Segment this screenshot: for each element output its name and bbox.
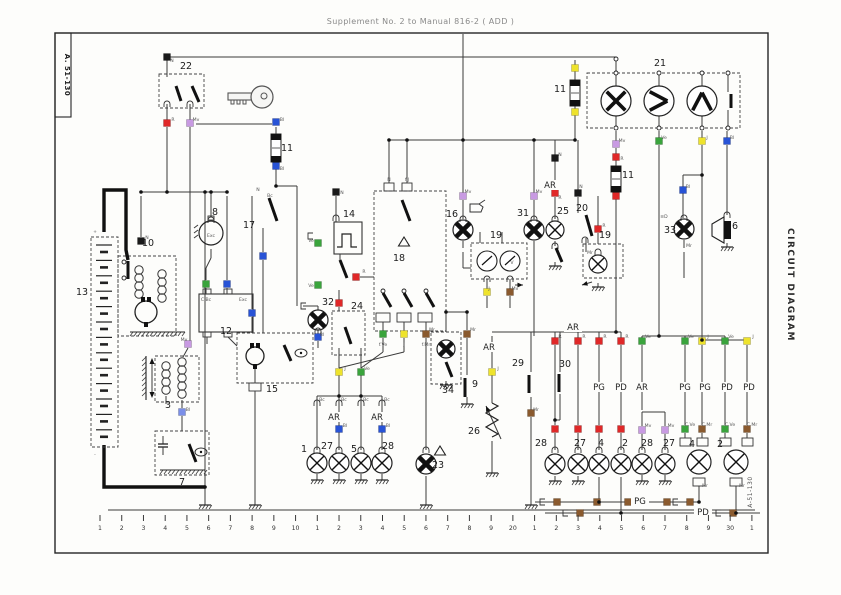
junction-dot <box>405 138 409 142</box>
terminal-number: 6 <box>207 525 211 532</box>
component-number: 27 <box>321 441 333 452</box>
component-number: 26 <box>468 426 480 437</box>
coil-loop <box>178 374 186 382</box>
connector-R <box>618 338 625 345</box>
vibrator-hatch <box>142 392 146 396</box>
dynamo <box>199 221 223 245</box>
ground-hatch <box>146 332 149 336</box>
component-number: 25 <box>557 206 569 217</box>
junction-dot <box>444 310 448 314</box>
wire-color-code: Bc <box>341 397 347 403</box>
motor-brush <box>250 343 254 348</box>
ground-hatch <box>164 470 167 474</box>
connector-Mr <box>577 510 584 517</box>
wire-color-code: R <box>620 156 624 162</box>
terminal-tab <box>203 289 211 294</box>
key-icon <box>237 100 240 104</box>
switch-blade <box>586 215 592 236</box>
junction-dot <box>614 330 618 334</box>
component-dashed-box <box>237 333 313 383</box>
component-number: 4 <box>689 439 695 450</box>
component-dashed-box <box>155 356 199 402</box>
component-number: 32 <box>322 297 334 308</box>
switch-blade <box>345 327 351 344</box>
ground-hatch <box>174 332 177 336</box>
wire-color-code: R <box>582 334 586 340</box>
wire-color-code: Mv <box>512 286 519 292</box>
ground-hatch <box>188 470 191 474</box>
junction-dot <box>734 511 738 515</box>
connector-Mr <box>664 499 671 506</box>
junction-dot <box>619 511 623 515</box>
wire-color-code: J <box>496 366 498 372</box>
connector-J <box>572 109 579 116</box>
wire-color-code: C.Bc <box>201 297 212 303</box>
coil-loop <box>158 278 166 286</box>
connector-J <box>401 331 408 338</box>
wire-color-code: Bl <box>686 184 690 190</box>
fuse-cap <box>611 166 621 172</box>
connector-Bl <box>249 310 256 317</box>
terminal-number: 7 <box>446 525 450 532</box>
terminal-number: 4 <box>381 525 385 532</box>
junction-dot <box>532 138 536 142</box>
connector-R <box>613 154 620 161</box>
terminal-circle <box>700 71 704 75</box>
motor-brush <box>141 297 145 302</box>
junction-dot <box>165 190 169 194</box>
terminal-tab <box>376 313 390 322</box>
connector-N <box>575 190 582 197</box>
terminal-tab <box>418 313 432 322</box>
connector-Ve <box>203 281 210 288</box>
wire-color-code: R <box>603 334 607 340</box>
motor-brush <box>147 297 151 302</box>
vibrator-arrow-head <box>150 358 155 364</box>
connector-J <box>699 138 706 145</box>
connector-Mr <box>554 499 561 506</box>
terminal-circle <box>726 126 730 130</box>
wire-color-code: Mr <box>470 327 476 333</box>
wire-color-code: J <box>706 334 708 340</box>
terminal-number: 4 <box>598 525 602 532</box>
dashlight-icon: ≡D <box>660 214 668 220</box>
fuse-cap <box>271 134 281 140</box>
oil-can-icon <box>479 200 485 204</box>
terminal-number: 20 <box>509 525 517 532</box>
wire-circuit-label: AR <box>544 181 556 191</box>
coil-loop <box>162 362 170 370</box>
connector-R <box>552 426 559 433</box>
terminal-number: 2 <box>120 525 124 532</box>
component-number: 3 <box>165 400 171 411</box>
wire-color-code: Bl <box>280 117 284 123</box>
junction-dot <box>700 338 704 342</box>
wire-color-code: Bc <box>363 397 369 403</box>
component-number: 29 <box>512 358 524 369</box>
ground-hatch <box>731 247 734 251</box>
terminal-number: 1 <box>98 525 102 532</box>
component-number: 1 <box>301 444 307 455</box>
wire-color-code: Mv <box>668 423 675 429</box>
dynamo-brush-hatch <box>194 235 198 238</box>
gauge <box>687 86 717 116</box>
ground-hatch <box>176 470 179 474</box>
cam-dot <box>200 451 202 453</box>
terminal-number: 9 <box>272 525 276 532</box>
terminal-number: 30 <box>726 525 734 532</box>
component-number: 28 <box>641 438 653 449</box>
terminal-number: 6 <box>641 525 645 532</box>
ground-hatch <box>158 332 161 336</box>
junction-dot <box>203 190 207 194</box>
ground-hatch <box>150 332 153 336</box>
wire-color-code: R <box>602 223 606 229</box>
wire-color-code: f.J <box>405 177 409 183</box>
terminal-circle <box>402 289 406 293</box>
oil-can-icon <box>470 204 483 212</box>
component-number: 14 <box>343 209 355 220</box>
connector-R <box>164 120 171 127</box>
wire-color-code: Ve <box>364 366 370 372</box>
connector-fork <box>582 237 588 243</box>
junction-dot <box>225 190 229 194</box>
terminal-number: 1 <box>750 525 754 532</box>
component-number: 19 <box>599 230 611 241</box>
component-number: 17 <box>243 220 255 231</box>
wire-circuit-label: PG <box>593 383 605 393</box>
terminal-number: 1 <box>315 525 319 532</box>
wire-color-code: Mv <box>181 337 188 343</box>
wire-color-code: Ve <box>308 283 314 289</box>
connector-J <box>572 65 579 72</box>
junction-dot <box>697 500 701 504</box>
coil-loop <box>158 294 166 302</box>
switch-blade <box>284 345 291 361</box>
wire-color-code: Bl <box>343 423 347 429</box>
terminal-circle <box>657 126 661 130</box>
component-number: 20 <box>576 203 588 214</box>
wire-color-code: Bc <box>319 397 325 403</box>
ground-hatch <box>166 332 169 336</box>
connector-J <box>744 338 751 345</box>
wire-circuit-label: AR <box>483 343 495 353</box>
terminal-number: 5 <box>185 525 189 532</box>
scanned-manual-page: Supplement No. 2 to Manual 816-2 ( ADD )… <box>0 0 841 595</box>
vibrator-hatch <box>142 382 146 386</box>
connector-Ve <box>315 282 322 289</box>
wire-color-code: N <box>340 190 343 196</box>
wire-circuit-label: PD <box>615 383 627 393</box>
connector-R <box>618 426 625 433</box>
wire-color-code: Mr <box>587 250 593 256</box>
wire-color-code: Ve <box>645 334 651 340</box>
coil-loop <box>135 282 143 290</box>
switch-blade <box>383 293 391 307</box>
junction-dot <box>139 190 143 194</box>
wire-color-code: Bc <box>267 193 273 199</box>
wire-circuit-label: AR <box>328 413 340 423</box>
fuse-cap <box>570 80 580 86</box>
vibrator-arrow-head <box>150 392 155 398</box>
component-number: 4 <box>598 438 604 449</box>
ground-hatch <box>184 470 187 474</box>
wire-color-code: R <box>558 334 562 340</box>
coil-loop <box>135 266 143 274</box>
component-number: 11 <box>554 84 566 95</box>
component-dashed-box <box>159 74 204 108</box>
junction-dot <box>387 138 391 142</box>
connector-BlL <box>179 409 186 416</box>
component-number: 11 <box>622 170 634 181</box>
terminal-circle <box>424 289 428 293</box>
wire-circuit-label: PG <box>634 497 646 507</box>
coil-loop <box>158 286 166 294</box>
component-number: 11 <box>281 143 293 154</box>
component-number: 13 <box>76 287 88 298</box>
terminal-tab <box>697 438 708 446</box>
junction-dot <box>553 418 557 422</box>
wire-color-code: J <box>487 286 489 292</box>
key-icon <box>251 86 273 108</box>
fuse-cap <box>611 186 621 192</box>
ground-hatch <box>728 247 731 251</box>
terminal-circle <box>700 126 704 130</box>
component-number: 18 <box>393 253 405 264</box>
terminal-number: 7 <box>663 525 667 532</box>
connector-N <box>333 189 340 196</box>
connector-Bl <box>336 426 343 433</box>
ground-hatch <box>130 332 133 336</box>
switch-blade <box>340 260 347 278</box>
ground-hatch <box>172 470 175 474</box>
component-number: 22 <box>180 61 192 72</box>
wire-color-code: J <box>751 334 753 340</box>
terminal-number: 2 <box>554 525 558 532</box>
terminal-tab <box>742 438 753 446</box>
vibrator-hatch <box>142 357 146 361</box>
wire-color-code: Exc <box>239 297 248 303</box>
component-number: 34 <box>442 385 454 396</box>
component-number: 16 <box>446 209 458 220</box>
ground-hatch <box>138 332 141 336</box>
ground-hatch <box>142 332 145 336</box>
ground-hatch <box>180 470 183 474</box>
connector-R <box>596 338 603 345</box>
motor-brush <box>144 322 148 327</box>
component-number: 6 <box>732 221 738 232</box>
component-box <box>334 222 362 254</box>
switch-blade <box>426 293 434 307</box>
ground-hatch <box>724 247 727 251</box>
component-number: 30 <box>559 359 571 370</box>
junction-dot <box>573 138 577 142</box>
wire-color-code: J <box>343 366 345 372</box>
connector-R <box>575 338 582 345</box>
flasher-squarewave-icon <box>337 234 357 247</box>
vibrator-hatch <box>142 387 146 391</box>
junction-dot <box>700 173 704 177</box>
ground-hatch <box>196 470 199 474</box>
motor <box>135 301 157 323</box>
terminal-number: 8 <box>467 525 471 532</box>
warning-triangle-icon <box>399 237 410 246</box>
wire-circuit-label: AR <box>636 383 648 393</box>
switch-blade <box>556 248 562 262</box>
terminal-number: 2 <box>337 525 341 532</box>
wire-color-code: f.Mr <box>422 342 431 348</box>
terminal-number: 5 <box>402 525 406 532</box>
wire-color-code: - <box>94 453 96 458</box>
connector-Bl <box>273 163 280 170</box>
vibrator-hatch <box>142 372 146 376</box>
coil-loop <box>178 358 186 366</box>
switch-blade <box>404 293 412 307</box>
wire-color-code: N <box>256 187 259 193</box>
connector-fork <box>595 249 601 255</box>
dynamo-brush-hatch <box>194 225 198 228</box>
component-number: 5 <box>351 444 357 455</box>
wire-color-code: R <box>558 195 562 201</box>
connector-J <box>336 369 343 376</box>
terminal-number: 3 <box>359 525 363 532</box>
ground-hatch <box>182 332 185 336</box>
ground-hatch <box>170 332 173 336</box>
connector-R <box>613 193 620 200</box>
wire-color-code: R <box>171 117 175 123</box>
switch-blade <box>269 198 277 221</box>
ground-hatch <box>168 470 171 474</box>
connector-Bl <box>260 253 267 260</box>
terminal-number: 8 <box>250 525 254 532</box>
key-icon <box>243 100 246 104</box>
horn-icon <box>724 221 731 239</box>
coil-loop <box>162 378 170 386</box>
terminal-tab <box>384 183 394 191</box>
terminal-number: 8 <box>685 525 689 532</box>
wire-color-code: Bc <box>384 397 390 403</box>
junction-dot <box>274 184 278 188</box>
connector-Ve <box>380 331 387 338</box>
vibrator-hatch <box>142 362 146 366</box>
ground-hatch <box>200 470 203 474</box>
terminal-circle <box>726 71 730 75</box>
terminal-tab <box>402 183 412 191</box>
terminal-number: 9 <box>706 525 710 532</box>
connector-J <box>489 369 496 376</box>
component-number: 27 <box>663 438 675 449</box>
dynamo-brush-hatch <box>194 230 198 233</box>
wire-color-code: C.Mr <box>702 422 713 428</box>
wire-color-code: J <box>705 135 707 141</box>
connector-Mr <box>625 499 632 506</box>
component-number: 23 <box>432 460 444 471</box>
connector-Bl <box>224 281 231 288</box>
wire-color-code: N <box>170 58 173 64</box>
wire-color-code: J <box>402 342 404 348</box>
terminal-circle <box>381 289 385 293</box>
wire-color-code: Ve <box>688 334 694 340</box>
key-icon <box>231 100 234 104</box>
terminal-number: 7 <box>228 525 232 532</box>
key-icon <box>228 93 254 100</box>
terminal-tab <box>203 332 211 337</box>
connector-Ve <box>315 240 322 247</box>
coil-loop <box>158 270 166 278</box>
vibrator-hatch <box>142 367 146 371</box>
terminal-circle <box>614 71 618 75</box>
wire-color-code: Mr <box>429 327 435 333</box>
fuse-cap <box>271 156 281 162</box>
junction-dot <box>597 500 601 504</box>
wire-circuit-label: PD <box>721 383 733 393</box>
ground-hatch <box>160 470 163 474</box>
wire-color-code: N <box>145 235 148 241</box>
terminal-circle <box>614 57 618 61</box>
terminal-circle <box>122 260 126 264</box>
connector-Bl <box>273 119 280 126</box>
wire-color-code: Mr <box>702 483 708 489</box>
terminal-number: 10 <box>292 525 300 532</box>
motor-brush <box>256 343 260 348</box>
component-number: 33 <box>664 225 676 236</box>
component-number: 9 <box>472 379 478 390</box>
component-number: 28 <box>382 441 394 452</box>
wire <box>228 337 237 346</box>
coil-loop <box>178 390 186 398</box>
coil-loop <box>135 274 143 282</box>
arrow-head <box>582 281 588 285</box>
motor-brush <box>253 364 257 369</box>
component-number: 12 <box>220 326 232 337</box>
terminal-number: 3 <box>141 525 145 532</box>
wire-color-code: Ve <box>728 334 734 340</box>
fuse-cap <box>570 100 580 106</box>
wire-color-code: Mr <box>686 243 692 249</box>
component-number: 8 <box>212 207 218 218</box>
switch-blade <box>176 86 181 101</box>
component-number: 2 <box>717 439 723 450</box>
connector-Bl <box>379 426 386 433</box>
wire-color-code: Mv <box>193 117 200 123</box>
wire-color-code: R <box>362 269 366 275</box>
junction-dot <box>209 190 213 194</box>
coil-loop <box>162 370 170 378</box>
ground-hatch <box>178 332 181 336</box>
connector-R <box>336 300 343 307</box>
wire-color-code: f.Ve <box>379 342 388 348</box>
component-number: 31 <box>517 208 529 219</box>
wire-circuit-label: PG <box>699 383 711 393</box>
ground-hatch <box>192 470 195 474</box>
wire-color-code: Ve <box>308 238 314 244</box>
component-number: 21 <box>654 58 666 69</box>
wire-color-code: Bl <box>280 166 284 172</box>
connector-Mr <box>687 499 694 506</box>
ground-hatch <box>721 247 724 251</box>
component-number: 2 <box>622 438 628 449</box>
coil-loop <box>178 382 186 390</box>
wire-color-code: Bl <box>386 423 390 429</box>
coil-loop <box>178 366 186 374</box>
frame-ref-label: A. 51-130 <box>63 54 71 96</box>
component-number: 28 <box>535 438 547 449</box>
switch-blade <box>402 200 410 221</box>
ground-hatch <box>134 332 137 336</box>
wire-color-code: Mv <box>465 189 472 195</box>
wire-circuit-label: PD <box>743 383 755 393</box>
wire-color-code: + <box>93 229 97 235</box>
